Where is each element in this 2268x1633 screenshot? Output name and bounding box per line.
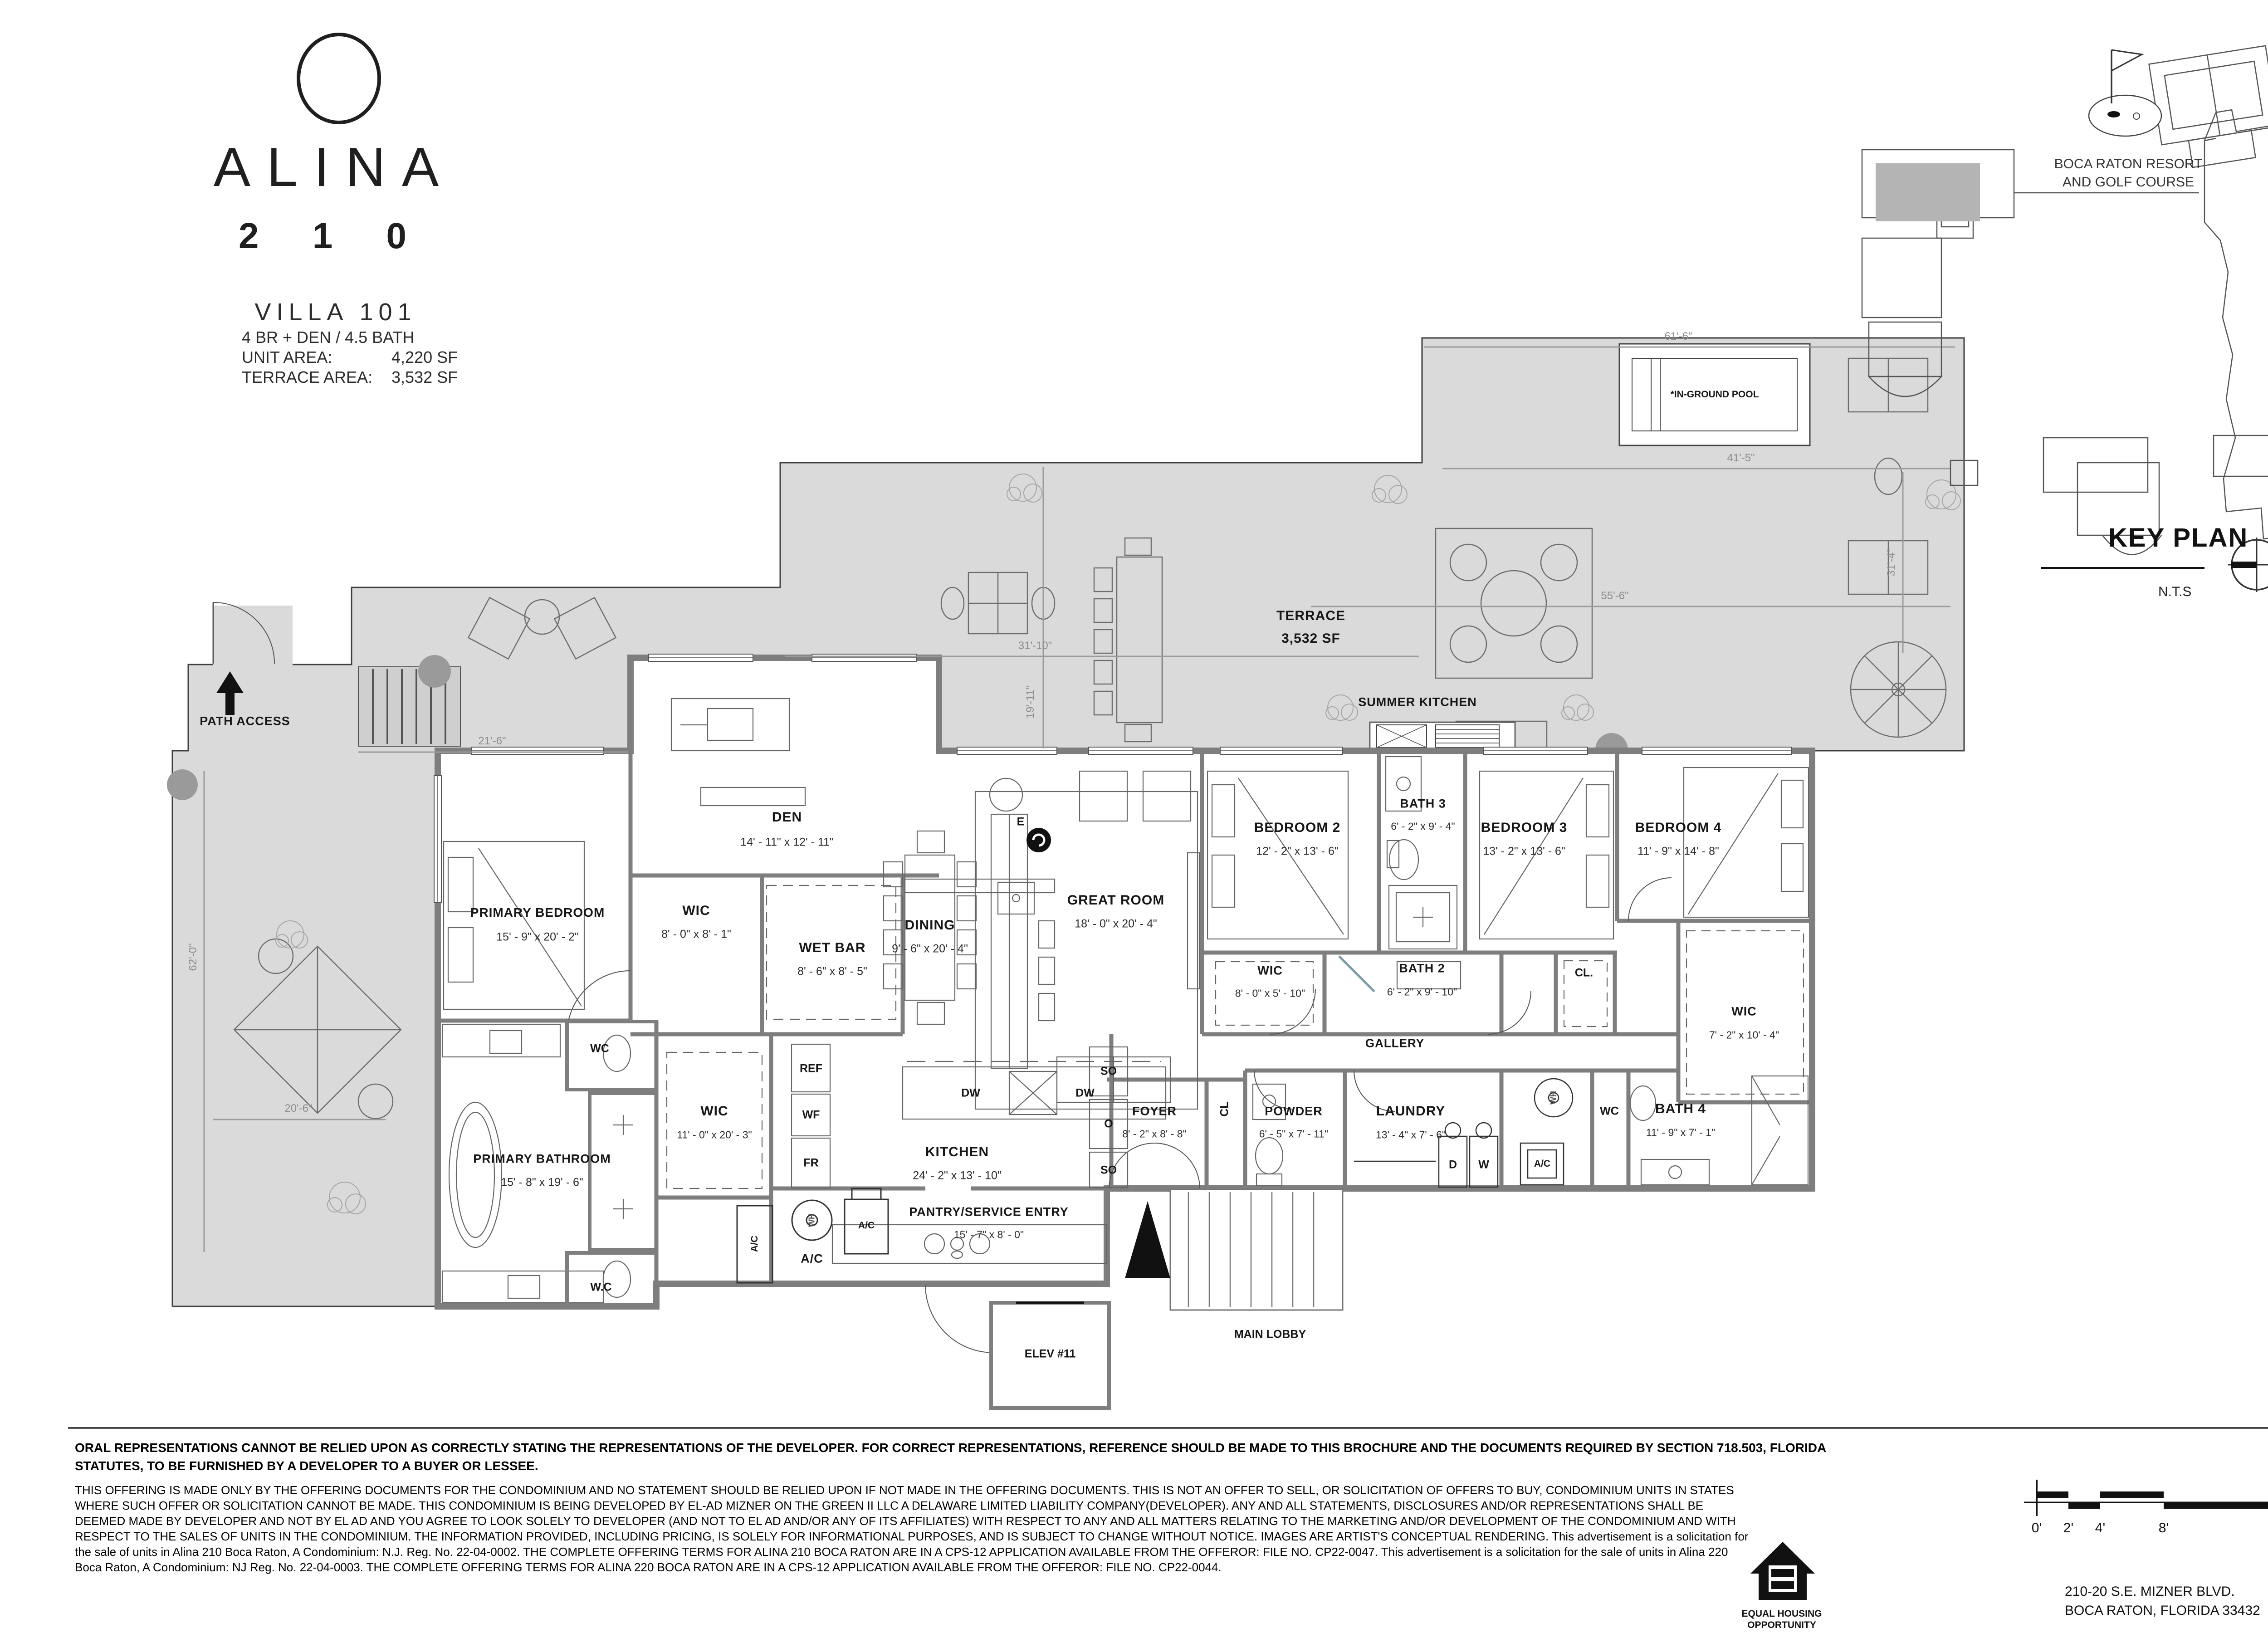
key-plan-unit-highlight xyxy=(1876,163,1980,221)
main-lobby-label: MAIN LOBBY xyxy=(1234,1328,1306,1341)
dim-31-4: 31'-4" xyxy=(1885,548,1898,576)
room-label-primary-bedroom: PRIMARY BEDROOM xyxy=(470,905,605,920)
room-dims-pantry: 15' - 7" x 8' - 0" xyxy=(954,1229,1024,1241)
disclaimer-bold: ORAL REPRESENTATIONS CANNOT BE RELIED UP… xyxy=(75,1439,1826,1475)
room-label-primary-bathroom: PRIMARY BATHROOM xyxy=(473,1152,611,1166)
room-dims-wic-bedroom4: 7' - 2" x 10' - 4" xyxy=(1709,1029,1779,1041)
room-dims-primary-bathroom: 15' - 8" x 19' - 6" xyxy=(501,1176,583,1189)
e-symbol-icon xyxy=(1026,828,1051,852)
dim-61-6: 61'-6" xyxy=(1664,330,1692,343)
room-label-bath-4: BATH 4 xyxy=(1655,1101,1706,1117)
footer-rule xyxy=(0,1424,2268,1433)
closet-label: CL. xyxy=(1575,967,1593,980)
path-access-label: PATH ACCESS xyxy=(200,714,290,728)
address: 210-20 S.E. MIZNER BLVD. BOCA RATON, FLO… xyxy=(2065,1582,2260,1620)
stairs xyxy=(1125,1189,1343,1310)
unit-envelope xyxy=(438,658,1812,1306)
room-label-laundry: LAUNDRY xyxy=(1376,1104,1446,1119)
summer-kitchen-label: SUMMER KITCHEN xyxy=(1358,695,1477,709)
room-dims-den: 14' - 11" x 12' - 11" xyxy=(740,836,834,849)
room-dims-wic-primary-small: 8' - 0" x 8' - 1" xyxy=(661,928,731,941)
ac-mech-label: A/C xyxy=(801,1252,823,1266)
room-label-bedroom-2: BEDROOM 2 xyxy=(1254,820,1341,836)
key-plan-title: KEY PLAN xyxy=(2108,523,2248,553)
room-label-den: DEN xyxy=(772,810,802,825)
room-dims-wic-primary-tall: 11' - 0" x 20' - 3" xyxy=(677,1129,752,1141)
pool-label: *IN-GROUND POOL xyxy=(1671,389,1759,400)
room-dims-bath-3: 6' - 2" x 9' - 4" xyxy=(1391,821,1455,833)
room-label-pantry: PANTRY/SERVICE ENTRY xyxy=(909,1205,1069,1219)
golf-flag-icon xyxy=(2089,50,2161,136)
dim-19-11: 19'-11" xyxy=(1024,686,1037,719)
room-dims-great-room: 18' - 0" x 20' - 4" xyxy=(1075,918,1157,931)
so-top-label: SO xyxy=(1100,1065,1117,1078)
entry-triangle-icon xyxy=(1125,1201,1170,1278)
dim-31-10: 31'-10" xyxy=(1018,640,1052,652)
room-dims-foyer: 8' - 2" x 8' - 8" xyxy=(1122,1128,1186,1140)
floorplan-brochure-page: BOCA RATON RESORT AND GOLF COURSE KEY PL… xyxy=(0,0,2268,1633)
room-label-wic-primary-tall: WIC xyxy=(700,1104,728,1119)
unit-area-row: UNIT AREA: 4,220 SF xyxy=(242,347,458,367)
room-label-powder: POWDER xyxy=(1265,1105,1323,1119)
dim-21-6: 21'-6" xyxy=(478,735,506,748)
ac-mech-box-label: A/C xyxy=(749,1236,760,1252)
room-dims-bath-4: 11' - 9" x 7' - 1" xyxy=(1646,1127,1716,1139)
equal-housing-text: EQUAL HOUSING OPPORTUNITY xyxy=(1742,1608,1822,1631)
wc-hall-label: WC xyxy=(1600,1105,1619,1118)
terrace-area-row: TERRACE AREA: 3,532 SF xyxy=(242,367,458,387)
gallery-label: GALLERY xyxy=(1365,1037,1424,1051)
room-label-bedroom-3: BEDROOM 3 xyxy=(1481,820,1568,836)
room-label-dining: DINING xyxy=(905,918,955,933)
terrace-area-label: 3,532 SF xyxy=(1281,631,1340,646)
unit-number: 2 1 0 xyxy=(239,215,428,257)
summer-kitchen-cabinet xyxy=(1370,722,1515,750)
electric-marker-label: E xyxy=(1017,816,1025,829)
room-dims-dining: 9' - 6" x 20' - 4" xyxy=(892,943,968,956)
dim-20-6: 20'-6" xyxy=(284,1102,312,1115)
unit-area-label: UNIT AREA: xyxy=(242,347,391,367)
wc-bottom-label: W.C xyxy=(590,1281,611,1294)
room-dims-wic-bedroom2: 8' - 0" x 5' - 10" xyxy=(1235,988,1305,1000)
scale-tick-0: 0' xyxy=(2032,1521,2042,1536)
room-label-bath-2: BATH 2 xyxy=(1399,962,1445,976)
ac-laundry-label: A/C xyxy=(1534,1159,1550,1169)
wh-laundry-label: WH xyxy=(1549,1091,1559,1105)
room-dims-bath-2: 6' - 2" x 9' - 10" xyxy=(1387,986,1457,998)
fr-label: FR xyxy=(803,1157,818,1170)
alina-logo-icon xyxy=(297,33,381,124)
room-dims-bedroom-2: 12' - 2" x 13' - 6" xyxy=(1256,845,1339,858)
wh-mech-label: WH xyxy=(807,1213,817,1227)
dryer-label: D xyxy=(1449,1159,1457,1172)
key-plan-resort-label: BOCA RATON RESORT AND GOLF COURSE xyxy=(2054,155,2203,191)
dim-55-6: 55'-6" xyxy=(1601,590,1628,602)
ref-label: REF xyxy=(800,1062,822,1076)
scale-tick-8: 8' xyxy=(2159,1521,2169,1536)
disclaimer-body: THIS OFFERING IS MADE ONLY BY THE OFFERI… xyxy=(75,1482,1748,1575)
washer-label: W xyxy=(1478,1159,1489,1172)
dim-41-5: 41'-5" xyxy=(1727,452,1755,464)
room-dims-wet-bar: 8' - 6" x 8' - 5" xyxy=(797,965,867,978)
so-bottom-label: SO xyxy=(1100,1164,1117,1177)
room-dims-bedroom-4: 11' - 9" x 14' - 8" xyxy=(1637,845,1719,858)
room-label-bedroom-4: BEDROOM 4 xyxy=(1635,820,1722,836)
dw-left-label: DW xyxy=(961,1087,980,1100)
room-label-foyer: FOYER xyxy=(1132,1105,1177,1119)
terrace-area-value: 3,532 SF xyxy=(391,367,458,387)
unit-specs: 4 BR + DEN / 4.5 BATH UNIT AREA: 4,220 S… xyxy=(242,328,458,387)
unit-area-value: 4,220 SF xyxy=(391,347,458,367)
ac-pantry-label: A/C xyxy=(858,1220,875,1231)
room-label-kitchen: KITCHEN xyxy=(925,1144,989,1160)
room-label-wic-bedroom4: WIC xyxy=(1731,1005,1756,1019)
brand-name: ALINA xyxy=(214,135,455,199)
dw-right-label: DW xyxy=(1075,1087,1095,1100)
wc-top-label: WC xyxy=(590,1042,609,1056)
spec-line: 4 BR + DEN / 4.5 BATH xyxy=(242,328,458,347)
room-label-wic-bedroom2: WIC xyxy=(1257,964,1282,978)
scale-tick-2: 2' xyxy=(2063,1521,2073,1536)
key-plan-scale-note: N.T.S xyxy=(2158,584,2191,600)
room-label-great-room: GREAT ROOM xyxy=(1067,893,1164,908)
room-label-wic-primary-small: WIC xyxy=(682,903,710,919)
room-label-bath-3: BATH 3 xyxy=(1400,797,1446,811)
villa-title: VILLA 101 xyxy=(254,298,416,326)
terrace-area-label: TERRACE AREA: xyxy=(242,367,391,387)
wf-label: WF xyxy=(802,1109,820,1122)
terrace-label: TERRACE xyxy=(1276,608,1345,624)
scale-tick-4: 4' xyxy=(2095,1521,2105,1536)
room-dims-laundry: 13' - 4" x 7' - 6" xyxy=(1376,1129,1446,1141)
equal-housing-icon xyxy=(1749,1540,1817,1606)
umbrella-table xyxy=(1851,642,1946,737)
scale-bar xyxy=(2023,1474,2268,1533)
room-dims-kitchen: 24' - 2" x 13' - 10" xyxy=(913,1169,1001,1183)
oven-label: O xyxy=(1104,1118,1113,1131)
foyer-closet-label: CL xyxy=(1218,1101,1232,1116)
dim-62-0: 62'-0" xyxy=(187,943,200,971)
elevator-label: ELEV #11 xyxy=(1025,1348,1076,1361)
room-dims-primary-bedroom: 15' - 9" x 20' - 2" xyxy=(496,931,579,944)
room-label-wet-bar: WET BAR xyxy=(799,940,866,956)
room-dims-powder: 6' - 5" x 7' - 11" xyxy=(1259,1128,1329,1140)
room-dims-bedroom-3: 13' - 2" x 13' - 6" xyxy=(1483,845,1565,858)
